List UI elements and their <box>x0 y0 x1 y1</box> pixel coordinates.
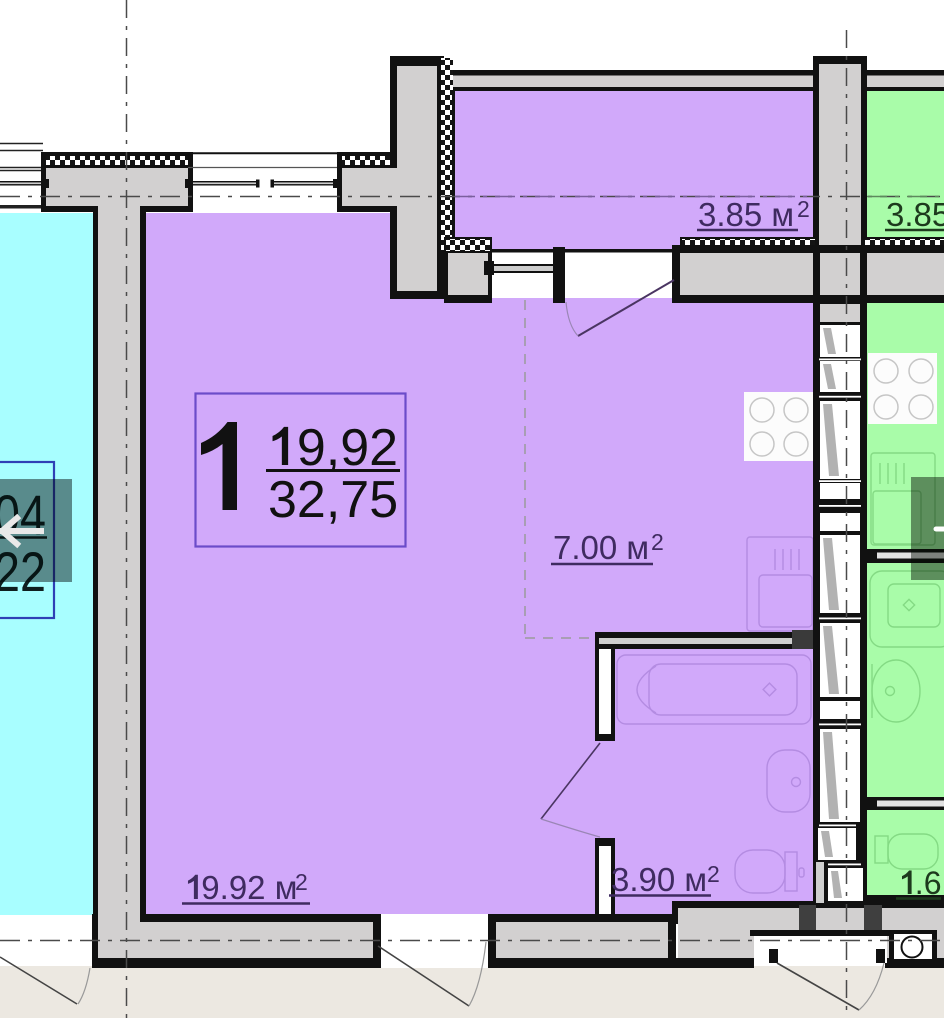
svg-text:9,92: 9,92 <box>297 419 398 477</box>
svg-text:2: 2 <box>651 529 664 555</box>
svg-text:32,75: 32,75 <box>268 471 398 529</box>
svg-text:.6: .6 <box>915 865 942 901</box>
svg-text:2: 2 <box>707 861 720 887</box>
svg-text:3.90 м: 3.90 м <box>611 861 707 898</box>
svg-text:2: 2 <box>797 196 810 222</box>
svg-text:3.85 м: 3.85 м <box>886 196 944 233</box>
svg-text:9.92 м: 9.92 м <box>201 869 297 906</box>
svg-text:2: 2 <box>295 869 308 895</box>
svg-text:3.85 м: 3.85 м <box>698 196 794 233</box>
svg-text:7.00 м: 7.00 м <box>553 529 649 566</box>
